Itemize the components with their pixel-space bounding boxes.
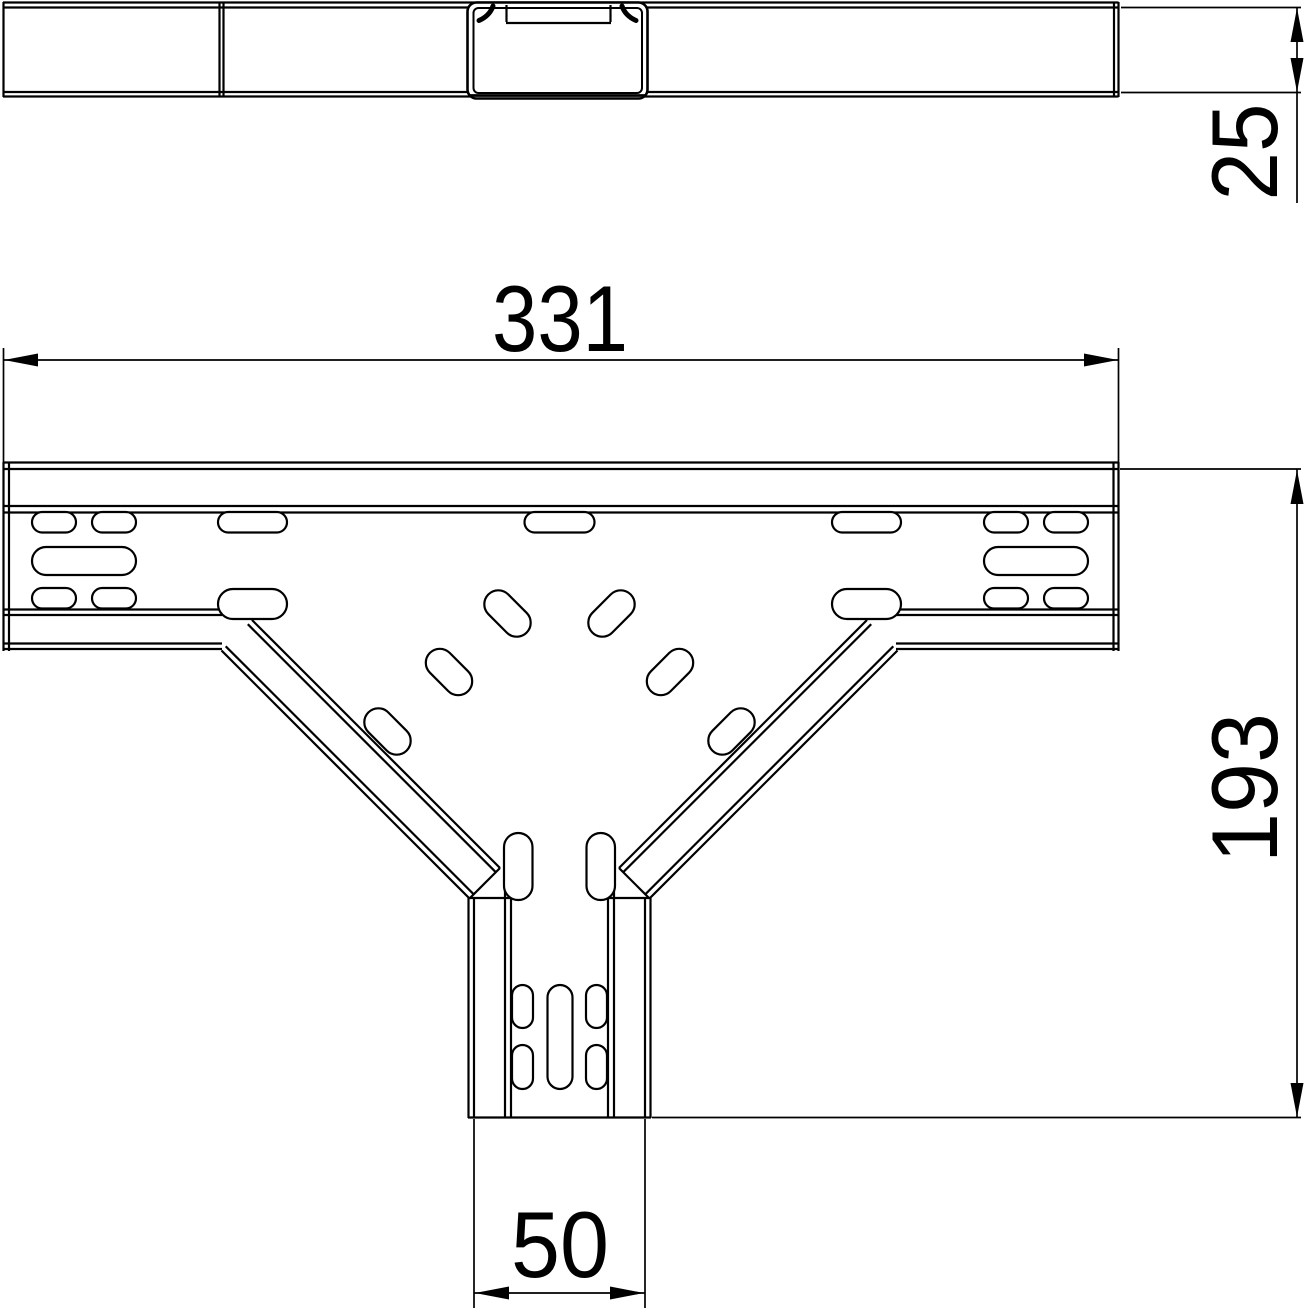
- slot: [583, 585, 641, 643]
- dimension-50: 50: [474, 1119, 645, 1308]
- arrow-up-icon: [1291, 8, 1304, 42]
- slot: [218, 512, 287, 533]
- slot: [1044, 588, 1088, 609]
- coupler: [468, 3, 648, 99]
- slot: [32, 512, 76, 533]
- slot: [420, 643, 478, 701]
- slot: [92, 512, 136, 533]
- coupler-inner: [474, 8, 643, 93]
- slot: [512, 985, 533, 1028]
- slot: [641, 643, 699, 701]
- slot: [703, 703, 761, 761]
- arrow-right-icon: [610, 1287, 644, 1300]
- dim-branch-width-label: 50: [511, 1192, 609, 1297]
- side-elevation: [3, 2, 1119, 99]
- slot: [359, 703, 417, 761]
- slot: [832, 589, 901, 619]
- dimension-193: 193: [652, 469, 1304, 1118]
- slot: [92, 588, 136, 609]
- dim-branch-depth-label: 193: [1192, 713, 1297, 863]
- plan-view: [3, 462, 1119, 1118]
- drawing-canvas: 25 331: [0, 0, 1308, 1309]
- slot: [525, 512, 595, 533]
- t-piece-drawing: 25 331: [0, 0, 1308, 1309]
- slot: [586, 985, 607, 1028]
- slot: [984, 588, 1028, 609]
- slot: [586, 1045, 607, 1089]
- slot: [984, 547, 1088, 575]
- slot: [218, 589, 287, 619]
- bottom-rail-right: [896, 610, 1119, 650]
- slot: [32, 547, 136, 575]
- arrow-left-icon: [475, 1287, 509, 1300]
- slot: [587, 833, 616, 900]
- slot: [479, 585, 537, 643]
- slot: [548, 985, 573, 1089]
- dim-side-height-label: 25: [1192, 104, 1297, 201]
- slot: [832, 512, 901, 533]
- slot: [1044, 512, 1088, 533]
- arrow-left-icon: [4, 354, 38, 367]
- arrow-down-icon: [1291, 1083, 1304, 1117]
- arrow-down-icon: [1291, 58, 1304, 92]
- perforation-slots: [32, 512, 1088, 1089]
- arrow-right-icon: [1084, 354, 1118, 367]
- dimension-25: 25: [1121, 8, 1304, 204]
- slot: [32, 588, 76, 609]
- bottom-rail-left: [3, 610, 222, 650]
- slot: [504, 833, 533, 900]
- slot: [512, 1045, 533, 1089]
- top-rail: [3, 463, 1119, 513]
- dim-overall-width-label: 331: [492, 266, 628, 371]
- slot: [984, 512, 1028, 533]
- dimension-331: 331: [4, 266, 1119, 462]
- arrow-up-icon: [1291, 470, 1304, 504]
